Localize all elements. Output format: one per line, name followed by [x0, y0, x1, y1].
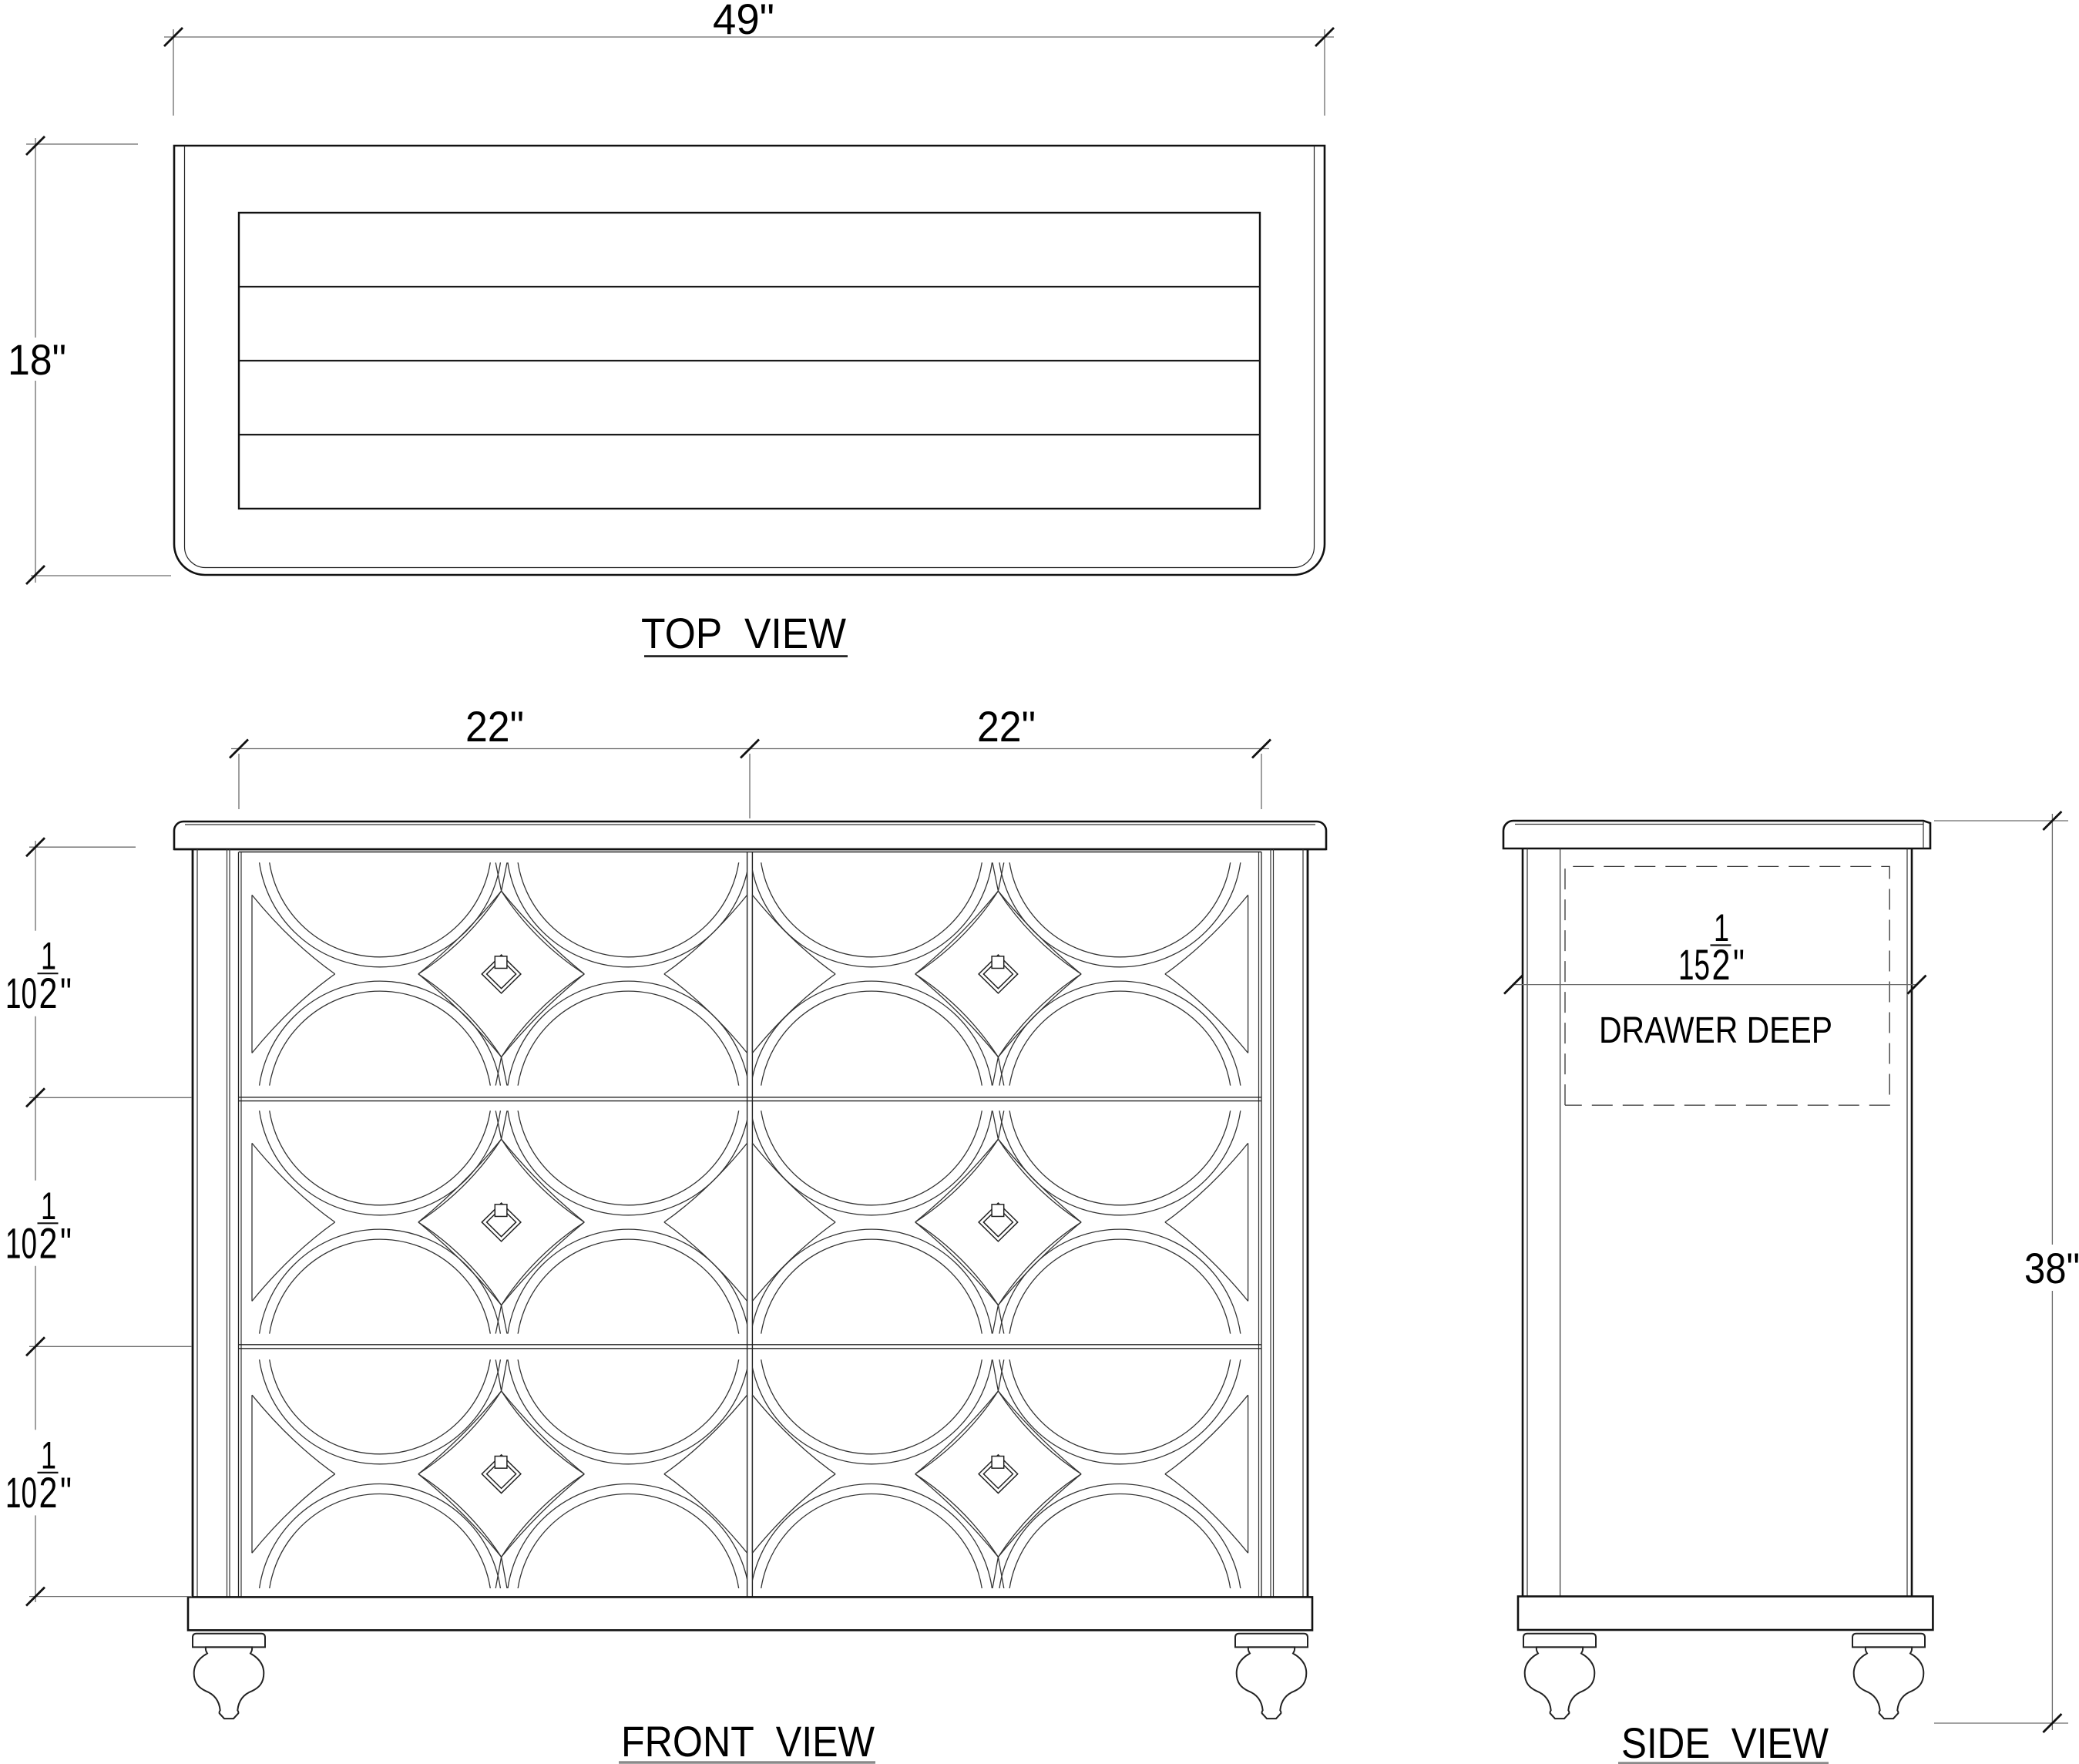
svg-text:": " [60, 1218, 72, 1267]
svg-text:2: 2 [1712, 940, 1731, 989]
svg-text:SIDE VIEW: SIDE VIEW [1621, 1719, 1829, 1764]
svg-text:2: 2 [39, 1468, 58, 1517]
svg-text:18": 18" [8, 335, 66, 384]
svg-text:FRONT VIEW: FRONT VIEW [621, 1717, 875, 1764]
svg-text:2: 2 [39, 969, 58, 1017]
svg-text:49": 49" [713, 0, 774, 43]
svg-text:15: 15 [1678, 940, 1710, 989]
svg-text:DRAWER DEEP: DRAWER DEEP [1599, 1010, 1832, 1051]
svg-text:38": 38" [2024, 1244, 2079, 1292]
svg-text:": " [60, 969, 72, 1017]
svg-text:22": 22" [465, 702, 524, 751]
svg-text:2: 2 [39, 1218, 58, 1267]
svg-text:": " [60, 1468, 72, 1517]
svg-text:10: 10 [5, 969, 37, 1017]
svg-text:10: 10 [5, 1468, 37, 1517]
svg-text:22": 22" [977, 702, 1036, 751]
svg-text:10: 10 [5, 1218, 37, 1267]
svg-text:": " [1733, 940, 1745, 989]
svg-text:TOP VIEW: TOP VIEW [641, 609, 846, 657]
